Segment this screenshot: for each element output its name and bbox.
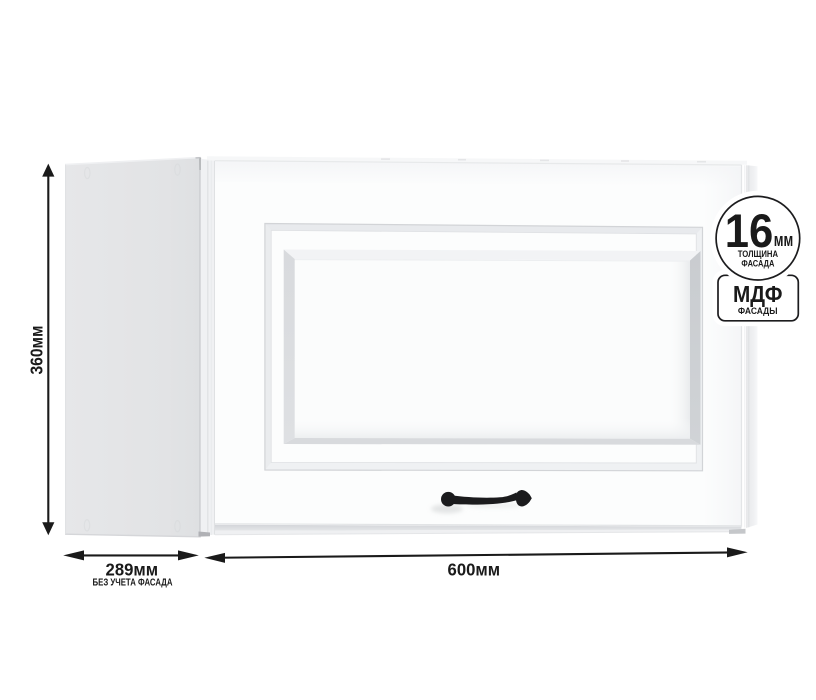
svg-text:600мм: 600мм xyxy=(448,559,501,579)
svg-text:мм: мм xyxy=(774,230,794,250)
svg-text:БЕЗ УЧЕТА ФАСАДА: БЕЗ УЧЕТА ФАСАДА xyxy=(93,577,173,588)
svg-text:360мм: 360мм xyxy=(27,326,47,375)
svg-text:ФАСАДЫ: ФАСАДЫ xyxy=(738,306,778,316)
svg-text:ФАСАДА: ФАСАДА xyxy=(741,258,774,268)
